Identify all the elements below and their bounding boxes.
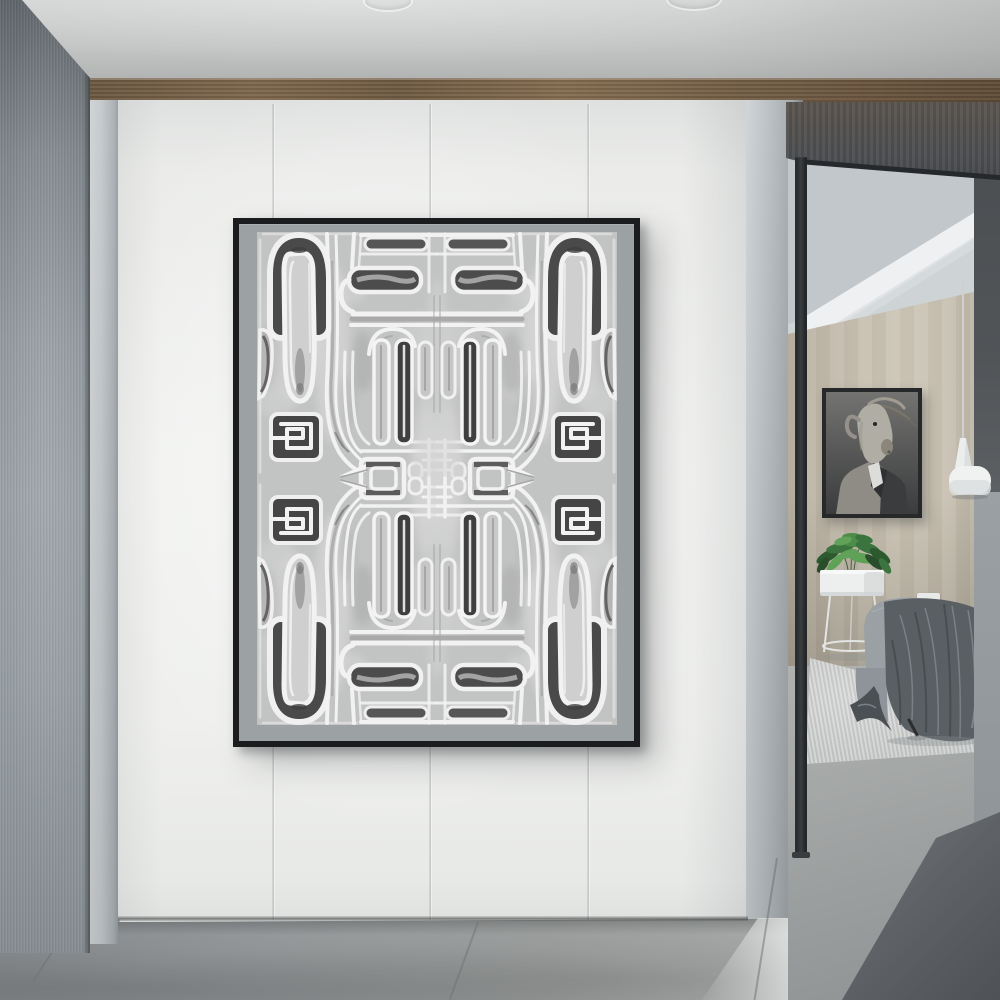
portrait-image xyxy=(826,392,918,514)
left-ribbed-wall xyxy=(0,0,90,953)
door-jamb-wall xyxy=(974,492,1000,840)
pendant-cord xyxy=(962,278,964,440)
wall-column xyxy=(90,100,118,944)
hall-ceiling xyxy=(0,0,1000,84)
portrait-frame xyxy=(822,388,922,518)
planter-pot xyxy=(820,570,884,596)
baseboard-shadow xyxy=(118,916,748,921)
room-furniture xyxy=(800,524,1000,814)
pendant-lamp xyxy=(944,430,996,500)
artwork-frame xyxy=(233,218,640,747)
interior-photo xyxy=(0,0,1000,1000)
door-frame xyxy=(795,157,807,855)
door-frame-foot xyxy=(792,852,810,858)
artwork-print xyxy=(257,232,617,725)
potted-plant xyxy=(814,533,893,576)
